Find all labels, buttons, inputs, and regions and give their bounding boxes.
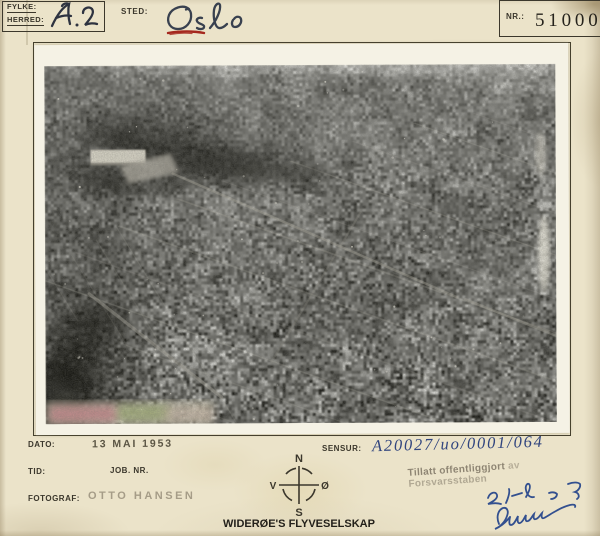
svg-text:S: S: [295, 507, 302, 518]
svg-text:Ø: Ø: [321, 481, 329, 492]
svg-text:V: V: [270, 481, 277, 492]
svg-text:N: N: [295, 453, 303, 465]
